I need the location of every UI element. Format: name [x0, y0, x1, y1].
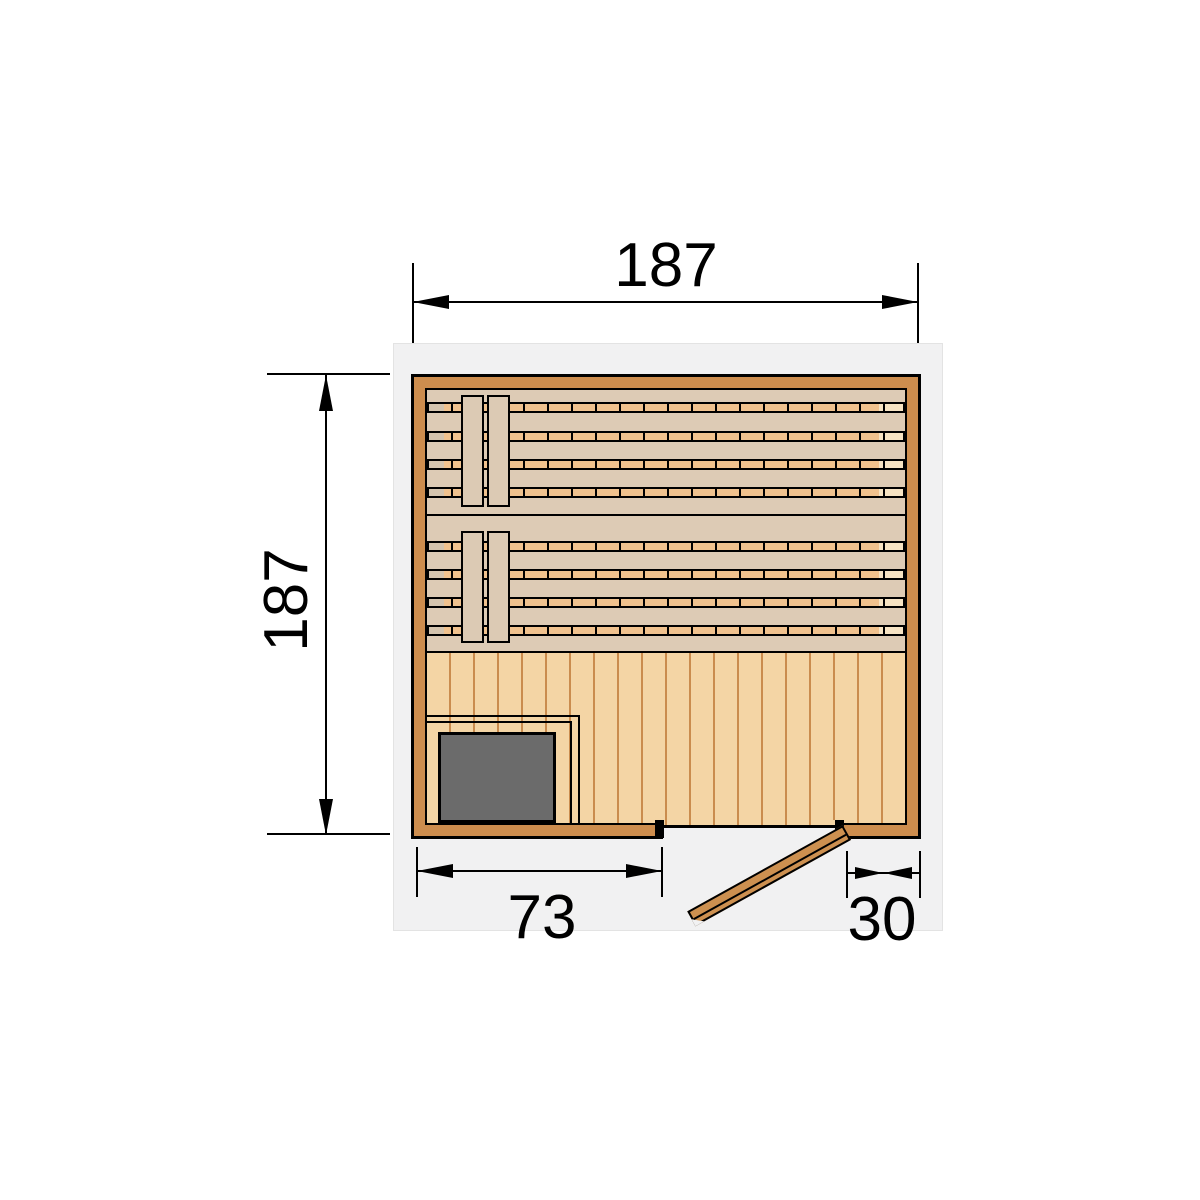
dim-width-line: [413, 301, 918, 303]
dim-depth-label: 187: [256, 480, 318, 720]
arrowhead-right-icon: [626, 864, 662, 878]
stove: [438, 732, 556, 823]
arrowhead-left-icon: [413, 295, 449, 309]
door-opening-gap: [663, 828, 835, 842]
bench-board: [487, 531, 510, 643]
dim-width-label: 187: [546, 235, 786, 297]
dim-stove-label: 73: [422, 887, 662, 949]
bench-board: [461, 531, 484, 643]
arrowhead-down-icon: [319, 799, 333, 835]
arrowhead-inward-right-icon: [855, 867, 883, 879]
arrowhead-left-icon: [417, 864, 453, 878]
dim-depth-line: [325, 374, 327, 835]
bench-board: [487, 395, 510, 507]
bench-divider-line: [427, 514, 905, 516]
door-post-left: [655, 820, 664, 838]
bench-board: [461, 395, 484, 507]
arrowhead-right-icon: [882, 295, 918, 309]
sauna-floor-plan: 187 187 73 30: [0, 0, 1200, 1200]
arrowhead-up-icon: [319, 375, 333, 411]
arrowhead-inward-left-icon: [884, 867, 912, 879]
sauna-interior: [425, 388, 907, 825]
dim-door-label: 30: [762, 889, 1002, 951]
